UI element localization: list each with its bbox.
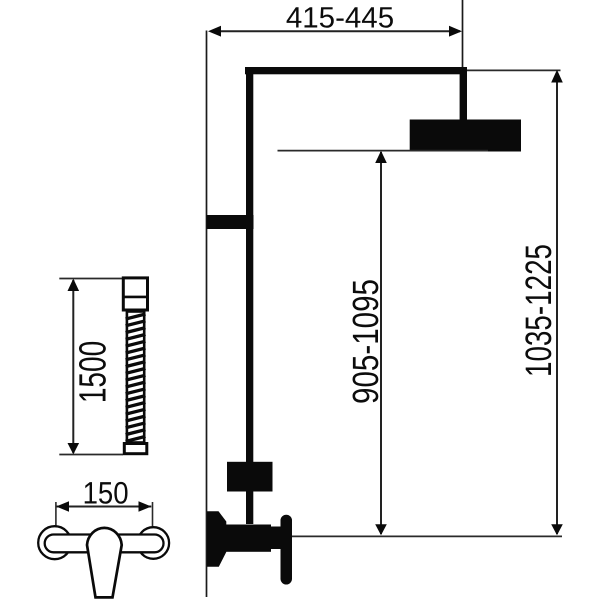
svg-text:1035-1225: 1035-1225 [518, 244, 559, 377]
svg-text:150: 150 [83, 476, 129, 511]
svg-text:1500: 1500 [73, 341, 115, 403]
svg-text:905-1095: 905-1095 [345, 279, 386, 404]
svg-text:415-445: 415-445 [286, 1, 394, 34]
